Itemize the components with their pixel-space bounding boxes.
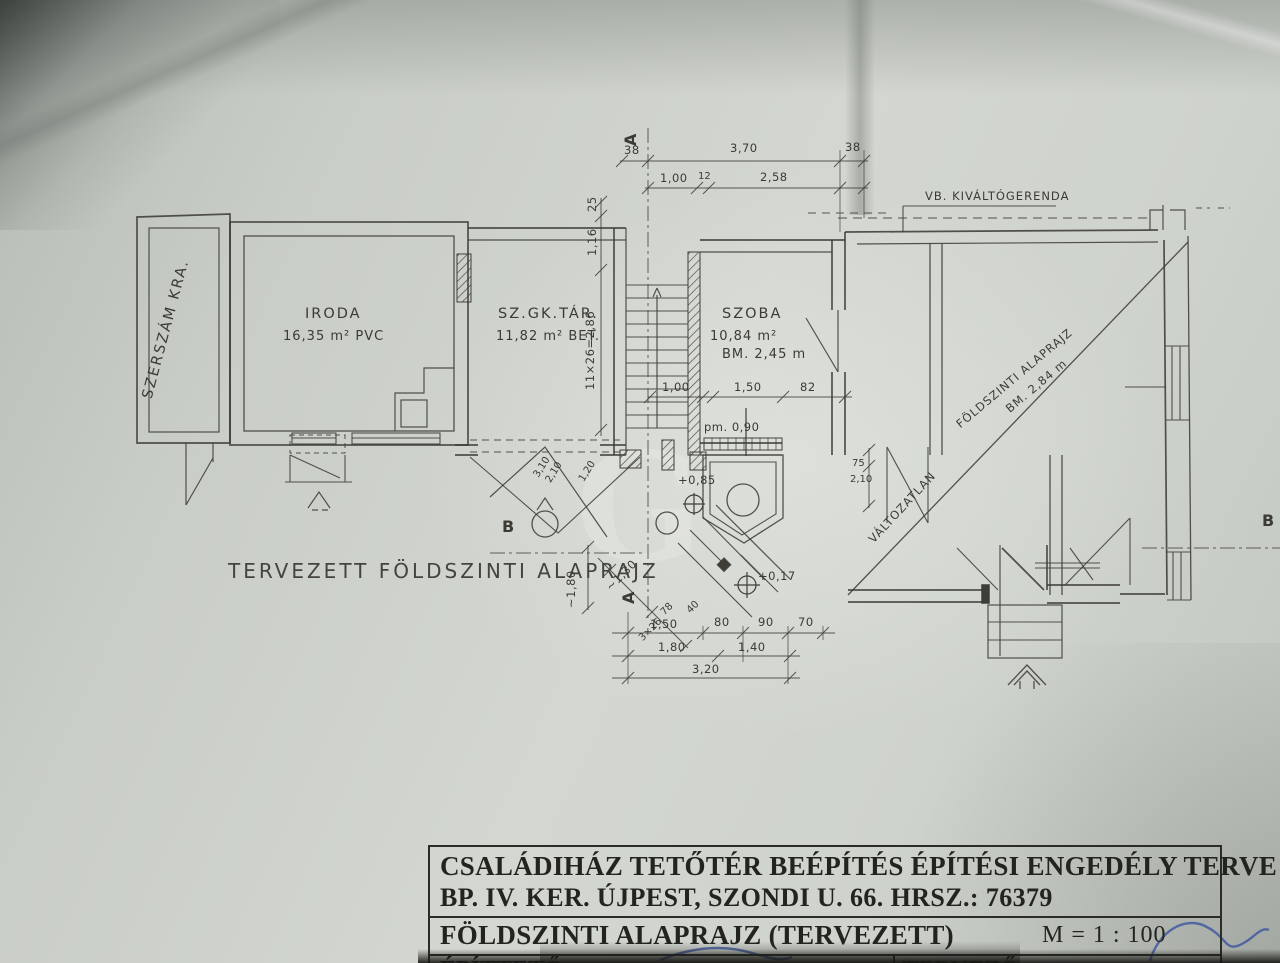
- floorplan-drawing: G: [0, 0, 1280, 963]
- dim-text: 2,10: [850, 474, 872, 485]
- dim-text: ~1,80: [564, 570, 578, 608]
- dim-text: 1,50: [650, 617, 678, 631]
- room-label-iroda: IRODA: [305, 306, 362, 322]
- room-area-iroda: 16,35 m² PVC: [283, 329, 384, 344]
- plan-caption: TERVEZETT FÖLDSZINTI ALAPRAJZ: [227, 559, 659, 583]
- dim-text: 40: [685, 599, 702, 616]
- title-block: CSALÁDIHÁZ TETŐTÉR BEÉPÍTÉS ÉPÍTÉSI ENGE…: [428, 845, 1222, 963]
- title-row-4: ÉPÍTTETŐ: TERVEZŐ:: [430, 956, 1220, 963]
- title-line-1: CSALÁDIHÁZ TETŐTÉR BEÉPÍTÉS ÉPÍTÉSI ENGE…: [430, 847, 1220, 882]
- dim-text: 2,58: [760, 170, 788, 184]
- dim-text: 70: [798, 615, 814, 629]
- room-labels: SZERSZÁM KRA. IRODA 16,35 m² PVC SZ.GK.T…: [139, 257, 806, 400]
- room-label-szoba: SZOBA: [722, 306, 782, 322]
- title-row-3: FÖLDSZINTI ALAPRAJZ (TERVEZETT) M = 1 : …: [430, 918, 1220, 956]
- level-017-label: +0,17: [758, 569, 796, 583]
- drawing-name: FÖLDSZINTI ALAPRAJZ (TERVEZETT): [440, 920, 954, 951]
- client-label: ÉPÍTTETŐ:: [440, 957, 571, 963]
- dim-text: 1,80: [658, 640, 686, 654]
- room-height-szoba: BM. 2,45 m: [722, 347, 806, 362]
- scale-label: M = 1 : 100: [1042, 922, 1167, 949]
- dim-text: 90: [758, 615, 774, 629]
- cell-divider: [893, 956, 895, 963]
- dim-text: 1,16: [585, 228, 599, 256]
- section-b-left: B: [502, 517, 514, 536]
- level-085-label: +0,85: [678, 473, 716, 487]
- dim-text: 3,70: [730, 141, 758, 155]
- dim-text: 12: [698, 171, 711, 182]
- dim-text: 25: [585, 196, 599, 212]
- dim-text: 1,40: [738, 640, 766, 654]
- dim-text: 1,00: [660, 171, 688, 185]
- title-line-2: BP. IV. KER. ÚJPEST, SZONDI U. 66. HRSZ.…: [430, 882, 1220, 918]
- section-b-right: B: [1262, 511, 1274, 530]
- dim-text: 11×26=2,86: [583, 311, 597, 390]
- scanned-floorplan-photo: G: [0, 0, 1280, 963]
- dim-text: 78: [659, 601, 676, 618]
- dim-text: 1,50: [734, 380, 762, 394]
- dim-text: 3,20: [692, 662, 720, 676]
- section-a-bottom: A: [619, 591, 638, 604]
- annotation-labels: VB. KIVÁLTÓGERENDA FÖLDSZINTI ALAPRAJZ B…: [227, 133, 1274, 604]
- parapet-label: pm. 0,90: [704, 420, 759, 434]
- room-label-szerszam: SZERSZÁM KRA.: [139, 257, 193, 400]
- designer-label: TERVEZŐ:: [902, 957, 1027, 963]
- dim-text: 82: [800, 380, 816, 394]
- beam-label: VB. KIVÁLTÓGERENDA: [925, 188, 1069, 203]
- dim-text: 75: [852, 458, 865, 469]
- dim-text: 1,00: [662, 380, 690, 394]
- dim-text: 80: [714, 615, 730, 629]
- dim-text: 38: [845, 140, 861, 154]
- dim-text: 38: [624, 143, 640, 157]
- room-area-szoba: 10,84 m²: [710, 329, 777, 344]
